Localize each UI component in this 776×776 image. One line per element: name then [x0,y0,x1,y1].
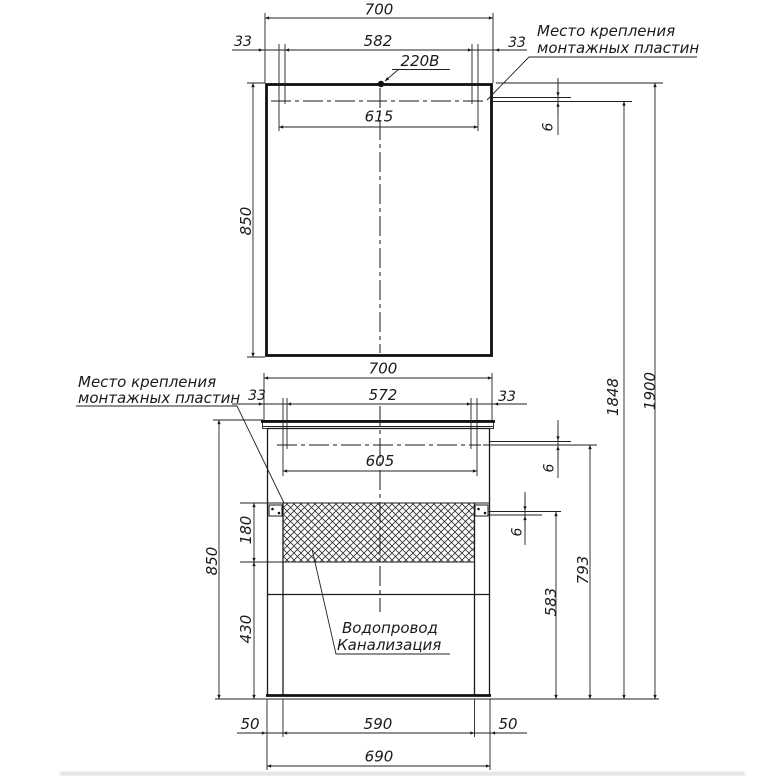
cropped-text-artifact [60,772,745,776]
plate-screw [278,512,281,515]
mounting-middle-label-line2: монтажных пластин [78,389,240,407]
plate-screw [477,508,480,511]
plate-screw [484,512,487,515]
dim-base-left-inset: 50 [240,715,259,733]
dim-lower-zone-height: 430 [237,615,255,644]
plumbing-service-zone-hatch [283,503,475,562]
dim-mirror-width: 700 [365,1,394,19]
dim-base-right-inset: 50 [498,715,517,733]
dim-base-overall-width: 690 [365,748,394,766]
dim-hatch-plate-inset: 6 [510,527,526,536]
dim-mirror-plates-inner: 582 [364,32,393,50]
power-outlet-dot [378,81,384,87]
dim-cabinet-height: 850 [203,547,221,576]
dim-mirror-offset-left: 33 [234,34,252,50]
dim-cabinet-offset-right: 33 [498,389,516,405]
plate-screw [271,508,274,511]
dim-cabinet-plates-outer: 605 [366,452,395,470]
drawing-canvas: 700 33 582 33 220В 615 6 850 1848 1900 7… [0,0,776,776]
dim-leg-span: 590 [364,715,393,733]
dim-mirror-plate-inset: 6 [541,122,557,131]
dim-cabinet-offset-left: 33 [248,388,266,404]
mounting-plate-right [475,505,488,516]
dim-floor-to-mirror-top: 1900 [641,372,659,410]
mounting-top-label-line2: монтажных пластин [537,39,699,57]
plate-body [269,505,282,516]
dim-mirror-height: 850 [237,207,255,236]
dim-cabinet-plates-inner: 572 [369,386,398,404]
dim-floor-to-mirror-plates: 1848 [604,378,622,416]
mounting-top-leader [487,57,697,100]
power-outlet-leader [385,69,399,81]
installation-drawing: 700 33 582 33 220В 615 6 850 1848 1900 7… [0,0,776,776]
dim-floor-to-hatch-plates: 583 [542,588,560,617]
dim-cabinet-plate-inset: 6 [542,463,558,472]
mounting-middle-leader [76,406,284,503]
power-outlet-label: 220В [401,52,440,70]
mounting-top-label-line1: Место крепления [537,22,675,40]
dim-mirror-plates-outer: 615 [365,108,394,126]
dim-floor-to-cabinet-plates: 793 [574,556,592,585]
plate-body [475,505,488,516]
plumbing-label-line1: Водопровод [342,619,438,637]
mounting-plate-left [269,505,282,516]
dim-cabinet-width: 700 [369,360,398,378]
plumbing-label-line2: Канализация [337,636,441,654]
dim-mirror-offset-right: 33 [508,35,526,51]
dim-service-zone-height: 180 [237,516,255,545]
